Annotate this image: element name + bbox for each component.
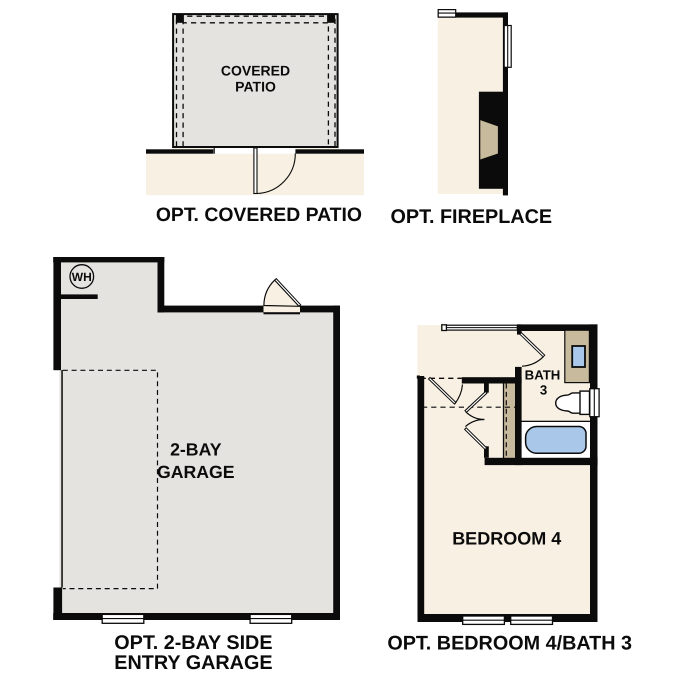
svg-text:ENTRY GARAGE: ENTRY GARAGE bbox=[114, 652, 272, 674]
svg-text:BATH: BATH bbox=[525, 368, 561, 383]
svg-text:GARAGE: GARAGE bbox=[157, 462, 235, 482]
svg-text:BEDROOM 4: BEDROOM 4 bbox=[452, 529, 561, 549]
svg-text:OPT. 2-BAY SIDE: OPT. 2-BAY SIDE bbox=[114, 632, 272, 654]
svg-text:WH: WH bbox=[72, 270, 92, 284]
svg-text:OPT. FIREPLACE: OPT. FIREPLACE bbox=[391, 206, 553, 228]
svg-text:OPT. COVERED PATIO: OPT. COVERED PATIO bbox=[156, 204, 362, 226]
svg-text:3: 3 bbox=[540, 382, 547, 397]
svg-text:PATIO: PATIO bbox=[235, 79, 276, 95]
svg-text:2-BAY: 2-BAY bbox=[170, 439, 222, 459]
svg-text:OPT. BEDROOM 4/BATH 3: OPT. BEDROOM 4/BATH 3 bbox=[387, 633, 632, 655]
svg-text:COVERED: COVERED bbox=[221, 63, 290, 79]
